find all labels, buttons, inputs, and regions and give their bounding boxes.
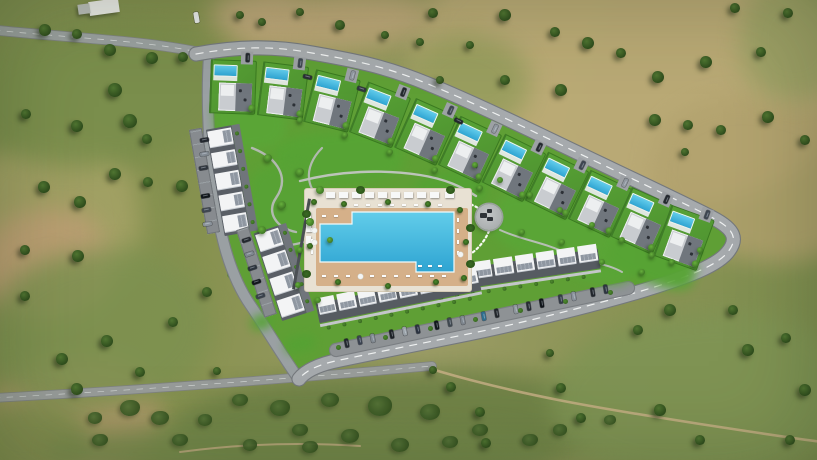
- tree: [146, 52, 158, 64]
- bush: [522, 434, 538, 447]
- tree: [123, 114, 137, 128]
- tree: [695, 435, 705, 445]
- tree: [38, 181, 50, 193]
- ornamental-tree: [527, 192, 533, 198]
- tree: [783, 8, 793, 18]
- bush: [341, 429, 359, 443]
- tree: [143, 177, 153, 187]
- bush: [198, 414, 212, 425]
- ornamental-tree: [557, 207, 563, 213]
- tree: [168, 317, 178, 327]
- ornamental-tree: [589, 222, 595, 228]
- tree: [785, 435, 795, 445]
- bush: [120, 400, 140, 416]
- tree: [56, 353, 68, 365]
- tree: [633, 325, 643, 335]
- tree: [681, 148, 689, 156]
- tree: [71, 383, 83, 395]
- tree: [72, 250, 84, 262]
- ornamental-tree: [477, 185, 483, 191]
- bush: [321, 393, 339, 407]
- tree: [296, 8, 304, 16]
- tree: [730, 3, 740, 13]
- tree: [446, 382, 456, 392]
- tree: [135, 367, 145, 377]
- ornamental-tree: [278, 201, 286, 209]
- tree: [654, 404, 666, 416]
- tree: [74, 196, 86, 208]
- ornamental-tree: [316, 186, 324, 194]
- bush: [292, 424, 308, 437]
- ornamental-tree: [296, 168, 304, 176]
- ornamental-tree: [599, 259, 605, 265]
- ornamental-tree: [639, 269, 645, 275]
- tree: [555, 84, 567, 96]
- tree: [436, 76, 444, 84]
- tree: [213, 367, 221, 375]
- tree: [20, 245, 30, 255]
- bush: [420, 404, 440, 420]
- tree: [781, 333, 791, 343]
- tree: [550, 27, 560, 37]
- tree: [21, 109, 31, 119]
- bush: [232, 394, 248, 407]
- tree: [649, 114, 661, 126]
- tree: [335, 20, 345, 30]
- ornamental-tree: [342, 132, 348, 138]
- tree: [756, 47, 766, 57]
- tree: [716, 125, 726, 135]
- tree: [499, 9, 511, 21]
- bush: [302, 441, 318, 454]
- tree: [800, 135, 810, 145]
- ornamental-tree: [519, 229, 525, 235]
- bush: [553, 424, 567, 435]
- tree: [142, 134, 152, 144]
- tree: [616, 48, 626, 58]
- ornamental-tree: [619, 237, 625, 243]
- tree: [546, 349, 554, 357]
- tree: [108, 83, 122, 97]
- ornamental-tree: [306, 218, 314, 226]
- tree: [481, 438, 491, 448]
- bush: [442, 436, 458, 449]
- tree: [71, 120, 83, 132]
- ornamental-tree: [669, 259, 675, 265]
- tree: [178, 52, 188, 62]
- aerial-site-plan: Aerial 3D masterplan render of a resort-…: [0, 0, 817, 460]
- tree: [700, 56, 712, 68]
- ornamental-tree: [297, 247, 303, 253]
- bush: [270, 400, 290, 416]
- tree: [799, 384, 811, 396]
- tree: [104, 44, 116, 56]
- bush: [604, 415, 616, 425]
- tree: [652, 71, 664, 83]
- tree: [109, 168, 121, 180]
- tree: [236, 11, 244, 19]
- ornamental-tree: [559, 239, 565, 245]
- tree: [556, 383, 566, 393]
- tree: [576, 413, 586, 423]
- vegetation-layer: [0, 0, 817, 460]
- tree: [72, 29, 82, 39]
- ornamental-tree: [649, 252, 655, 258]
- tree: [466, 41, 474, 49]
- ornamental-tree: [497, 177, 503, 183]
- tree: [101, 335, 113, 347]
- ornamental-tree: [327, 237, 333, 243]
- ornamental-tree: [258, 226, 266, 234]
- tree: [500, 75, 510, 85]
- tree: [20, 291, 30, 301]
- ornamental-tree: [264, 154, 272, 162]
- tree: [664, 304, 676, 316]
- bush: [243, 439, 257, 450]
- tree: [428, 8, 438, 18]
- ornamental-tree: [297, 117, 303, 123]
- tree: [762, 111, 774, 123]
- bush: [92, 434, 108, 447]
- tree: [429, 366, 437, 374]
- tree: [475, 407, 485, 417]
- tree: [742, 344, 754, 356]
- tree: [582, 37, 594, 49]
- tree: [381, 31, 389, 39]
- ornamental-tree: [315, 297, 321, 303]
- ornamental-tree: [432, 167, 438, 173]
- bush: [368, 396, 392, 415]
- ornamental-tree: [472, 162, 478, 168]
- bush: [391, 438, 409, 452]
- tree: [728, 305, 738, 315]
- tree: [416, 38, 424, 46]
- tree: [258, 18, 266, 26]
- ornamental-tree: [295, 282, 301, 288]
- bush: [88, 412, 102, 423]
- bush: [151, 411, 169, 425]
- bush: [472, 424, 488, 437]
- bush: [172, 434, 188, 447]
- tree: [176, 180, 188, 192]
- ornamental-tree: [387, 149, 393, 155]
- ornamental-tree: [697, 247, 703, 253]
- tree: [683, 120, 693, 130]
- tree: [39, 24, 51, 36]
- tree: [202, 287, 212, 297]
